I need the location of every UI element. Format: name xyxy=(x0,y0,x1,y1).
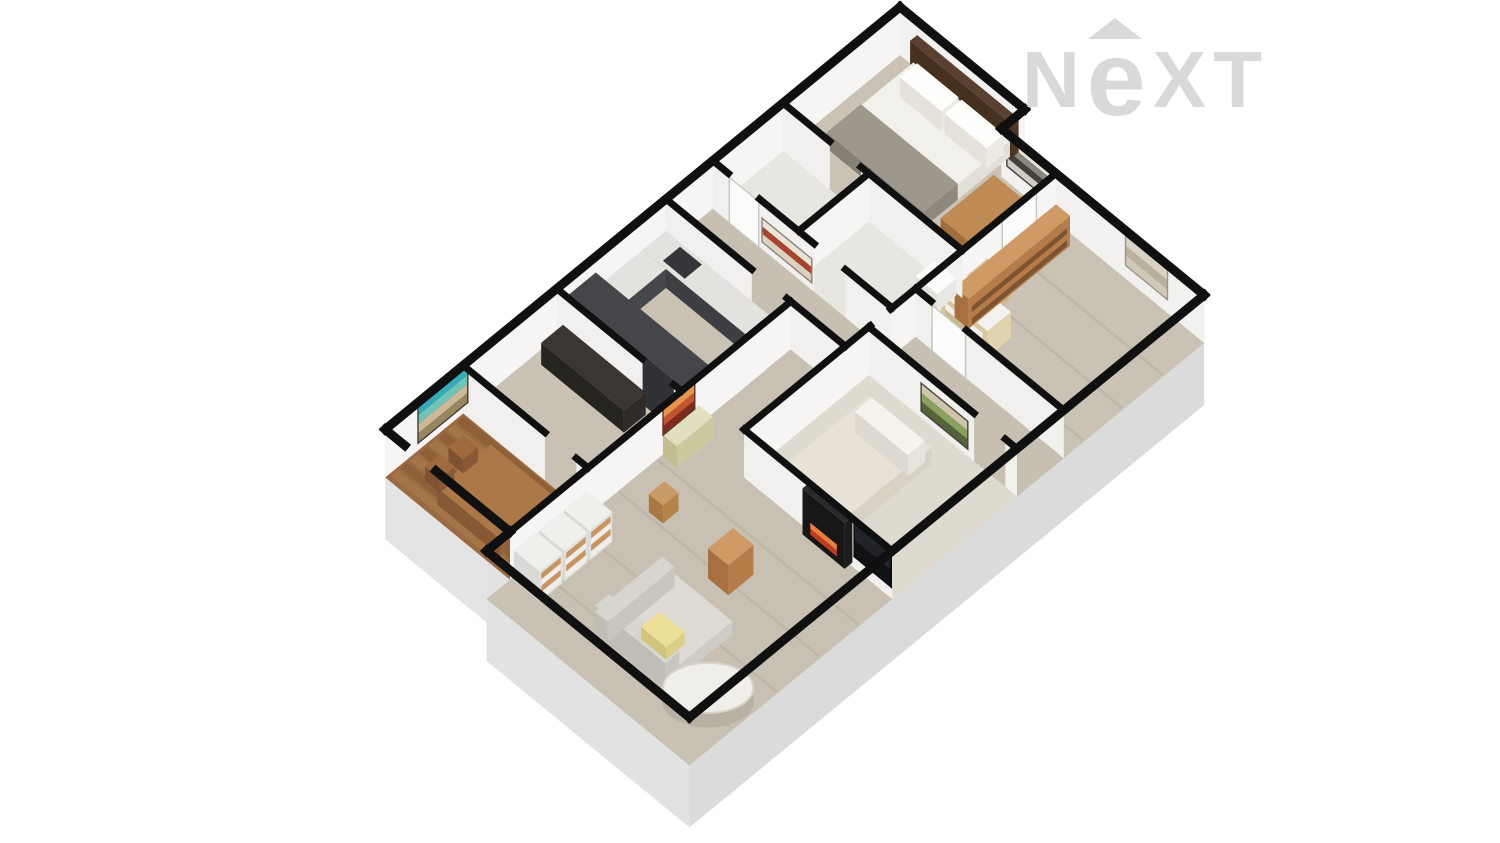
next-logo: N e XT xyxy=(1022,18,1282,128)
logo-letters-xt: XT xyxy=(1153,40,1269,120)
logo-letter-n: N xyxy=(1022,40,1087,120)
floorplan-stage: N e XT xyxy=(0,0,1500,843)
fireplace-surround xyxy=(845,517,853,569)
logo-text: N e XT xyxy=(1022,40,1282,126)
